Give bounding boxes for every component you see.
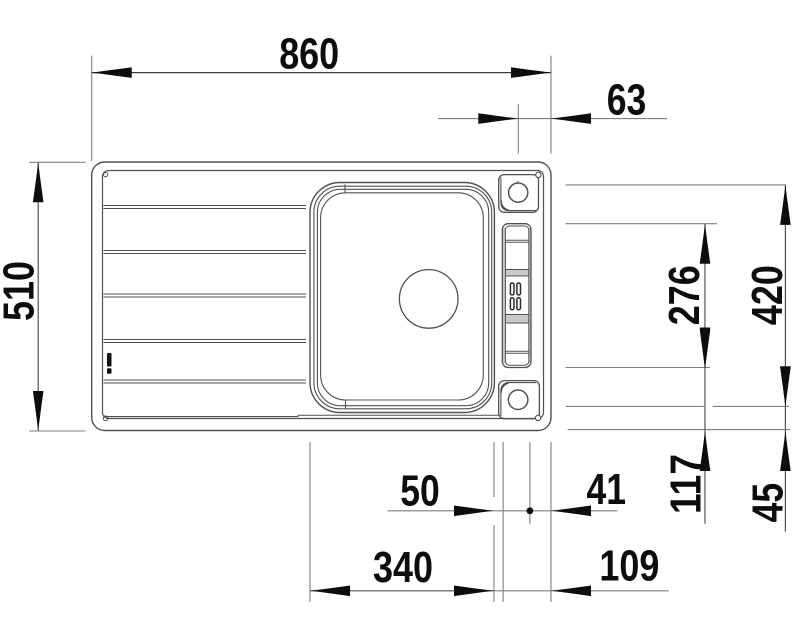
svg-text:860: 860 [279, 30, 339, 79]
svg-text:45: 45 [743, 483, 792, 522]
svg-text:109: 109 [599, 542, 659, 591]
svg-text:340: 340 [373, 543, 433, 592]
svg-text:50: 50 [400, 467, 440, 516]
svg-text:117: 117 [661, 454, 710, 514]
svg-text:41: 41 [587, 465, 627, 514]
svg-text:276: 276 [660, 265, 709, 325]
svg-text:420: 420 [743, 265, 792, 325]
svg-text:63: 63 [607, 76, 647, 125]
svg-text:510: 510 [0, 261, 44, 321]
